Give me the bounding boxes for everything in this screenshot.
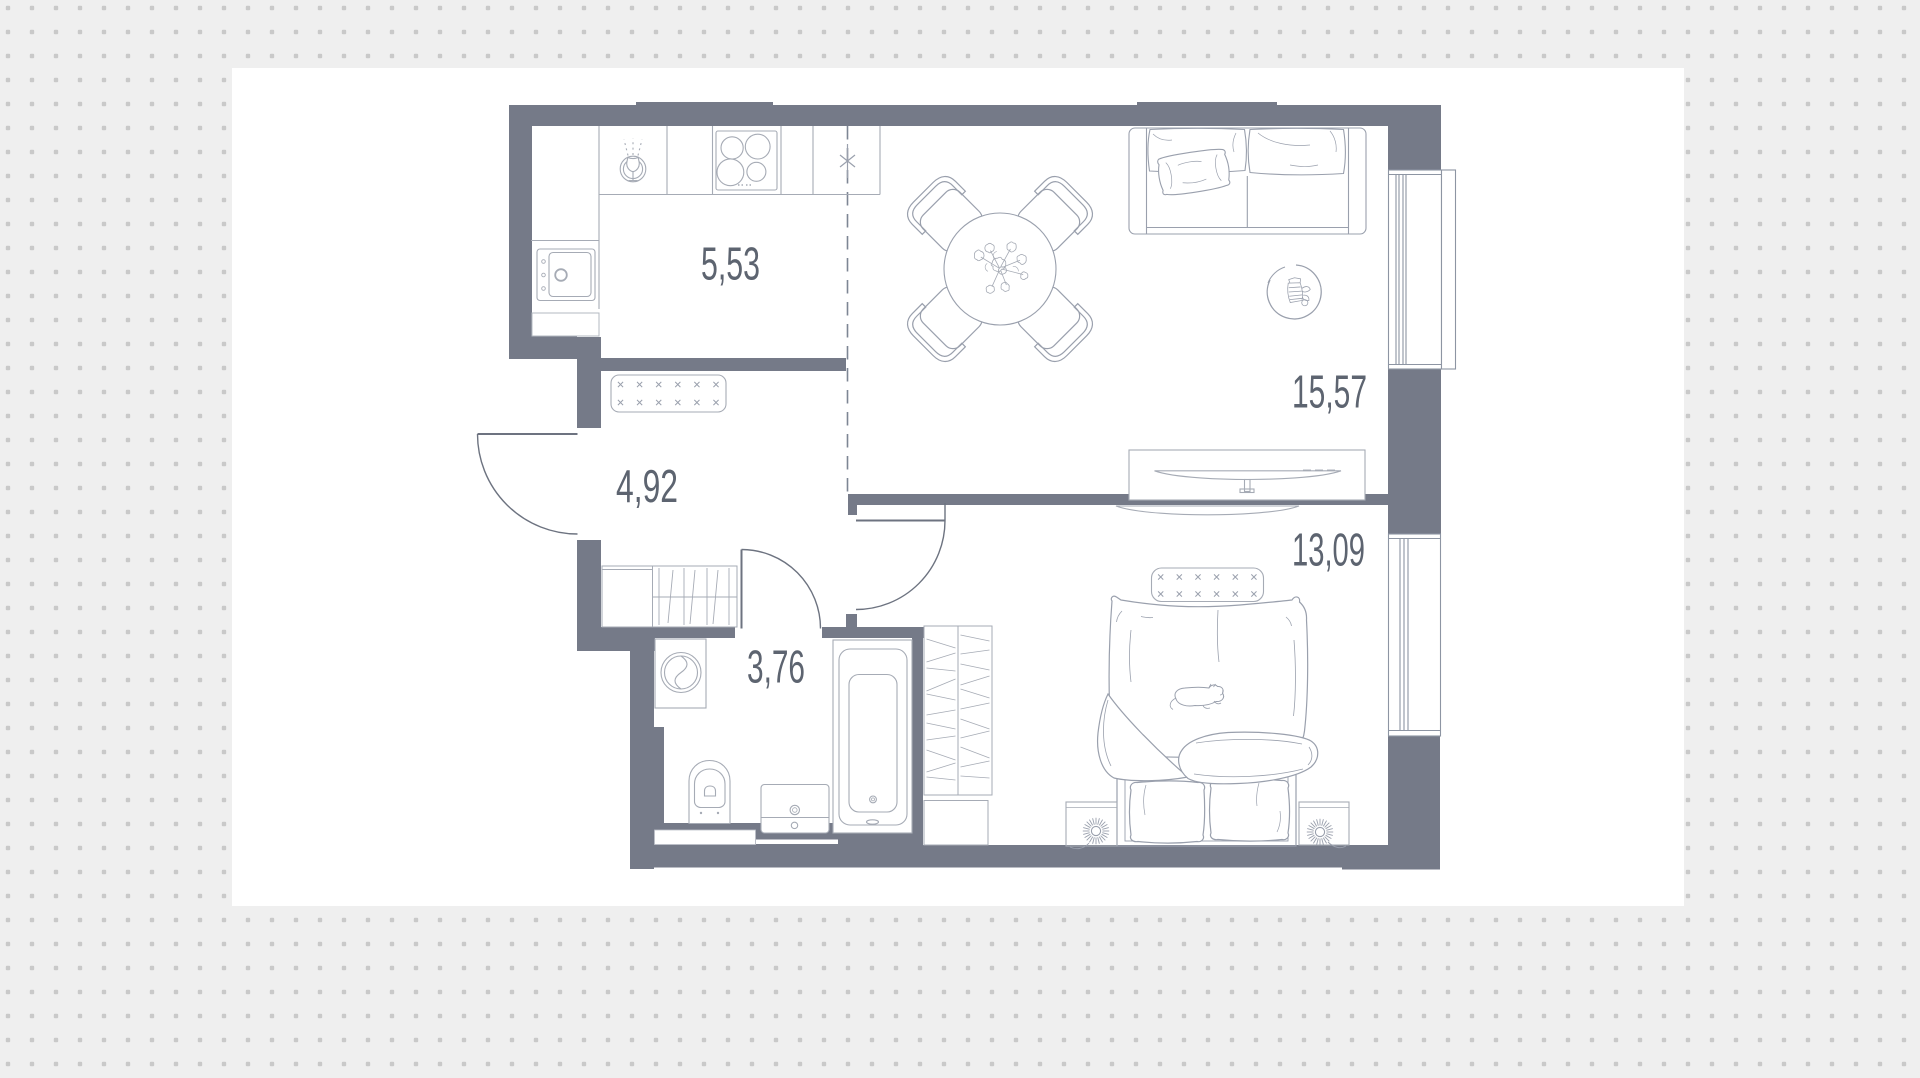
svg-text:3,76: 3,76 xyxy=(747,641,805,693)
svg-text:4,92: 4,92 xyxy=(616,460,678,512)
svg-text:15,57: 15,57 xyxy=(1292,366,1367,418)
svg-text:13,09: 13,09 xyxy=(1292,524,1365,576)
svg-text:5,53: 5,53 xyxy=(701,238,760,290)
